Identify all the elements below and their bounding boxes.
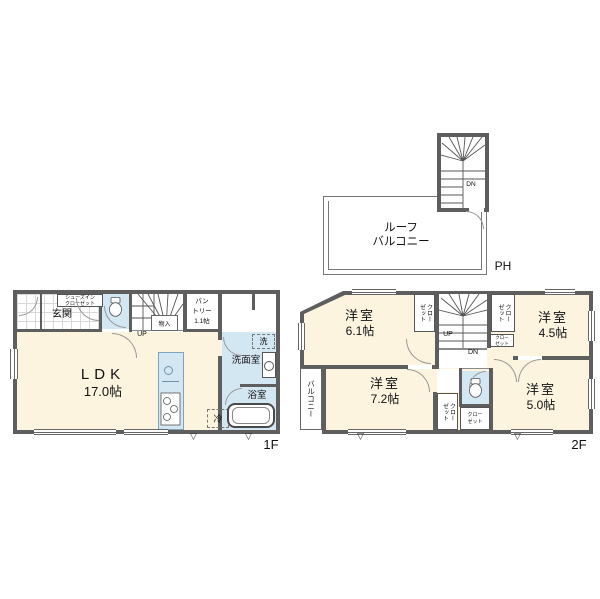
f1-washer-space: 洗 (252, 334, 275, 349)
f1-entrance-label: 玄関 (44, 309, 80, 322)
f2-room-ne-size: 4.5帖 (521, 326, 585, 341)
f2-room-se-label: 洋室 5.0帖 (509, 382, 573, 413)
f1-pantry-line1: パン (186, 297, 218, 307)
f2-closet-sw-label: クローゼット (441, 402, 455, 421)
f1-wall-stub (252, 294, 255, 310)
vent-mark: ▽ (190, 432, 197, 441)
f2-closet-mid-line2: ゼット (495, 341, 509, 346)
f1-pantry-size: 1.1帖 (186, 317, 218, 327)
f1-wall (40, 294, 42, 332)
window (545, 289, 575, 295)
f1-under-stairs-storage: 物入 (151, 315, 178, 331)
f1-fridge-label: 冷 (213, 412, 222, 425)
ph-stairs-dn-label: DN (463, 181, 479, 189)
f2-room-sw-size: 7.2帖 (353, 392, 417, 407)
f2-room-ne-label: 洋室 4.5帖 (521, 310, 585, 341)
window (588, 379, 595, 409)
f2-floor-label: 2F (566, 437, 592, 453)
ph-label: PH (491, 259, 515, 274)
f2-closet-s: クロー ゼット (460, 407, 490, 430)
f2-closet-mid: クロー ゼット (490, 334, 514, 347)
f2-wall (459, 368, 462, 407)
f1-kitchen-sink-icon (164, 366, 173, 375)
roof-balcony-label-line1: ルーフ (351, 221, 451, 235)
f2-closet-nw: クローゼット (414, 294, 435, 332)
f1-wall (183, 329, 222, 332)
f2-balcony: バルコニー (300, 368, 322, 430)
f1-bathroom-label: 浴室 (240, 390, 274, 402)
f2-room-se-name: 洋室 (509, 382, 573, 398)
f1-storage-label: 物入 (158, 319, 170, 328)
f1-kitchen-divider (162, 381, 179, 382)
vent-mark: ▽ (245, 432, 252, 441)
vent-mark: ▽ (357, 432, 364, 441)
window (124, 429, 168, 435)
f2-room-nw-size: 6.1帖 (328, 324, 392, 339)
f1-pantry-label: パン トリー 1.1帖 (186, 297, 218, 326)
f2-toilet-top-line (462, 368, 489, 369)
f1-wall (240, 384, 276, 387)
roof-balcony-label-line2: バルコニー (351, 235, 451, 249)
window (352, 289, 396, 295)
f2-room-nw-label: 洋室 6.1帖 (328, 308, 392, 339)
f2-balcony-label: バルコニー (306, 380, 317, 418)
vent-mark: ▽ (514, 432, 521, 441)
f2-closet-sw: クローゼット (437, 393, 458, 430)
f2-closet-ne-label: クローゼット (496, 304, 510, 323)
floor-plan-canvas: ルーフ バルコニー DN PH UP 物入 シューズイン クローゼット 玄関 (0, 0, 600, 599)
f2-stairs-up-label: UP (440, 331, 456, 340)
f1-ldk-size: 17.0帖 (63, 384, 143, 400)
f1-wall (17, 329, 101, 332)
window (298, 323, 305, 350)
f2-room-nw-name: 洋室 (328, 308, 392, 324)
f1-bathtub-icon (227, 403, 275, 428)
f2-room-se-size: 5.0帖 (509, 398, 573, 413)
ph-stairs-icon (441, 137, 485, 208)
window (588, 311, 595, 341)
f2-closet-s-line2: ゼット (467, 419, 482, 426)
f1-wall (218, 294, 222, 340)
f2-closet-nw-label: クローゼット (418, 304, 432, 323)
f1-stove-icon (160, 392, 181, 426)
f2-hall-floor-lower (437, 369, 459, 392)
window (10, 349, 18, 379)
roof-balcony-label: ルーフ バルコニー (351, 221, 451, 250)
f1-washer-label: 洗 (260, 336, 268, 347)
f1-ldk-label: LDK (63, 366, 143, 385)
f2-stairs-dn-label: DN (464, 349, 482, 358)
f1-washbasin-icon (262, 352, 276, 378)
window (34, 429, 116, 435)
f1-pantry-line2: トリー (186, 307, 218, 317)
f2-stairs-icon (439, 294, 487, 348)
f2-door-gap (408, 365, 432, 369)
f2-room-ne-name: 洋室 (521, 310, 585, 326)
f2-closet-ne: クローゼット (491, 294, 515, 332)
f1-fridge-space: 冷 (207, 409, 229, 428)
f1-floor-label: 1F (258, 437, 284, 453)
f1-stairs-up-label: UP (134, 331, 150, 340)
